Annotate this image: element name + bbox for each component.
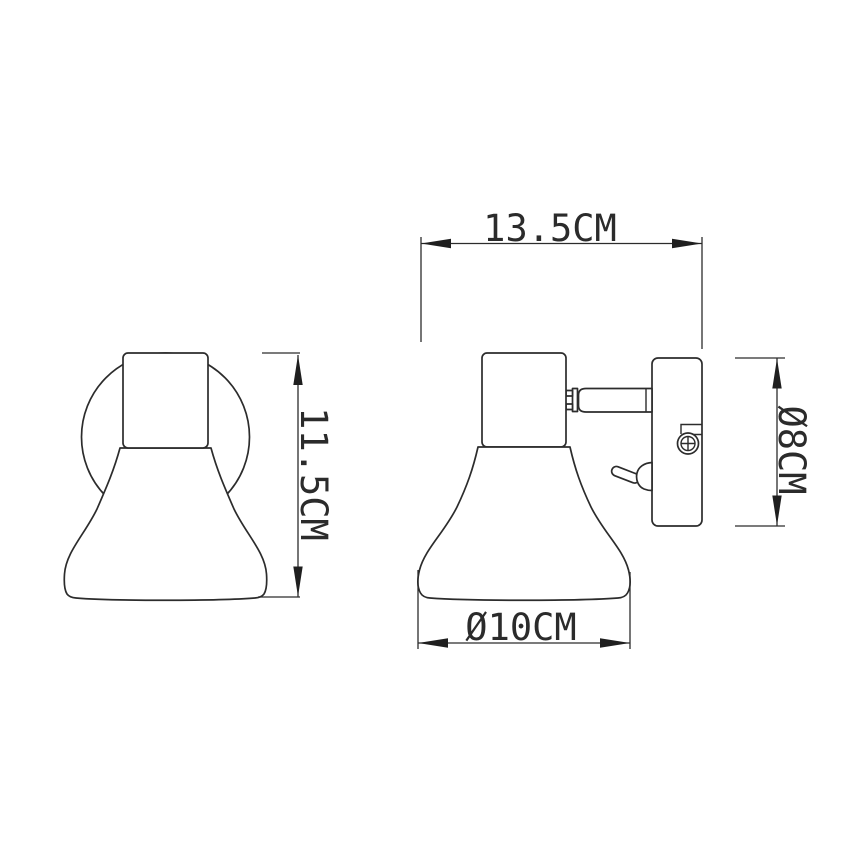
arrowhead-down [772, 496, 781, 526]
arm-joint-flange [566, 389, 578, 412]
lamp-body-side [482, 353, 566, 447]
front-view [64, 353, 267, 600]
dimension-height: 11.5CM [258, 353, 335, 597]
side-view [418, 353, 702, 600]
switch-knob-base [637, 463, 652, 491]
arrowhead-up [293, 355, 302, 385]
mounting-screw [678, 433, 699, 454]
swivel-arm [579, 389, 653, 413]
arrowhead-left [421, 239, 451, 248]
arrowhead-left [418, 638, 448, 647]
dimension-label-height: 11.5CM [292, 407, 335, 541]
dimension-plate-diameter: Ø8CM [735, 358, 813, 526]
lamp-shade-front [64, 448, 267, 600]
dimension-width: 13.5CM [421, 207, 702, 349]
arrowhead-right [600, 638, 630, 647]
lamp-body-front [123, 353, 208, 448]
arrowhead-up [772, 359, 781, 389]
dimension-label-width: 13.5CM [483, 207, 617, 250]
lamp-shade-side [418, 447, 630, 600]
wall-spotlight-technical-drawing: 13.5CM 11.5CM Ø8CM Ø10CM [0, 0, 868, 868]
arrowhead-right [672, 239, 702, 248]
dimension-label-shade-diameter: Ø10CM [465, 606, 576, 649]
dimension-label-plate-diameter: Ø8CM [770, 405, 813, 494]
technical-drawing-canvas: 13.5CM 11.5CM Ø8CM Ø10CM [0, 0, 868, 868]
arrowhead-down [293, 567, 302, 597]
